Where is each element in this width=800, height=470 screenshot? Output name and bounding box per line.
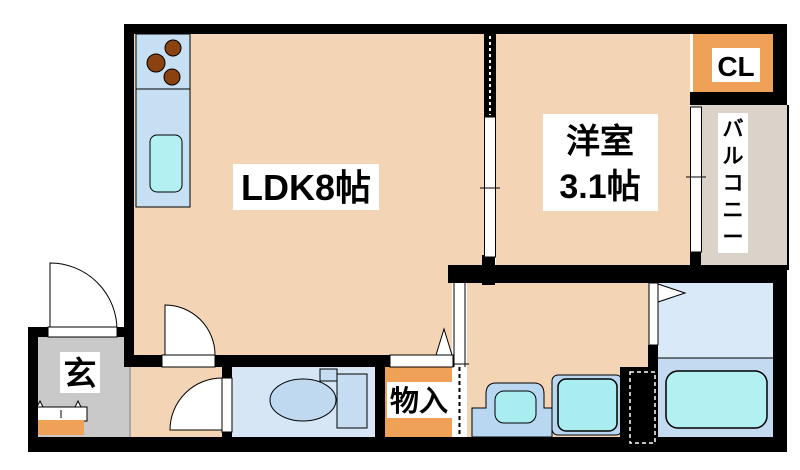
wall-top [124, 24, 787, 34]
wall-right-lower [773, 265, 787, 452]
washbasin-bowl [495, 391, 536, 423]
bath-door-panel [649, 283, 658, 345]
stove-burner-2 [147, 54, 165, 72]
wall-balcony-stub [690, 252, 701, 268]
ldk-label: LDK8帖 [241, 167, 371, 208]
wall-waterarea-top [448, 265, 787, 283]
kitchen-sink [150, 135, 182, 192]
storage-label: 物入 [390, 385, 448, 418]
toilet-door-leaf [222, 378, 232, 432]
wall-bottom [28, 437, 787, 452]
wall-bathdoor-stub [648, 345, 658, 367]
western-size: 3.1帖 [559, 168, 640, 206]
stove-burner-3 [164, 69, 180, 85]
floor-plan-page: LDK8帖洋室3.1帖CLバルコニー玄物入 [0, 0, 800, 470]
western-label: 洋室 [566, 122, 634, 161]
wall-bath-service [620, 367, 658, 445]
toilet-bowl [270, 379, 336, 421]
wall-cl-bottom [690, 92, 787, 105]
entrance-step [38, 420, 84, 435]
wall-left [124, 24, 134, 367]
wall-entrance-left [28, 327, 38, 452]
washing-machine [558, 379, 617, 431]
balcony-label: バルコニー [723, 118, 744, 249]
closet-label: CL [717, 51, 754, 82]
toilet-tank [337, 374, 367, 428]
stove-burner-1 [165, 40, 181, 56]
wall-toilet-right [375, 363, 385, 437]
entrance-label: 玄 [64, 355, 97, 392]
floor-plan-canvas: LDK8帖洋室3.1帖CLバルコニー玄物入 [0, 0, 800, 470]
western-window [691, 107, 702, 252]
bathtub [666, 371, 767, 428]
sliding-door-panel [485, 117, 496, 257]
entrance-door-swing [50, 263, 117, 330]
ldk-door-leaf [162, 355, 215, 367]
storage-fold-door [390, 355, 453, 367]
entrance-door-leaf [48, 327, 117, 337]
toilet-flush-box [320, 369, 337, 381]
